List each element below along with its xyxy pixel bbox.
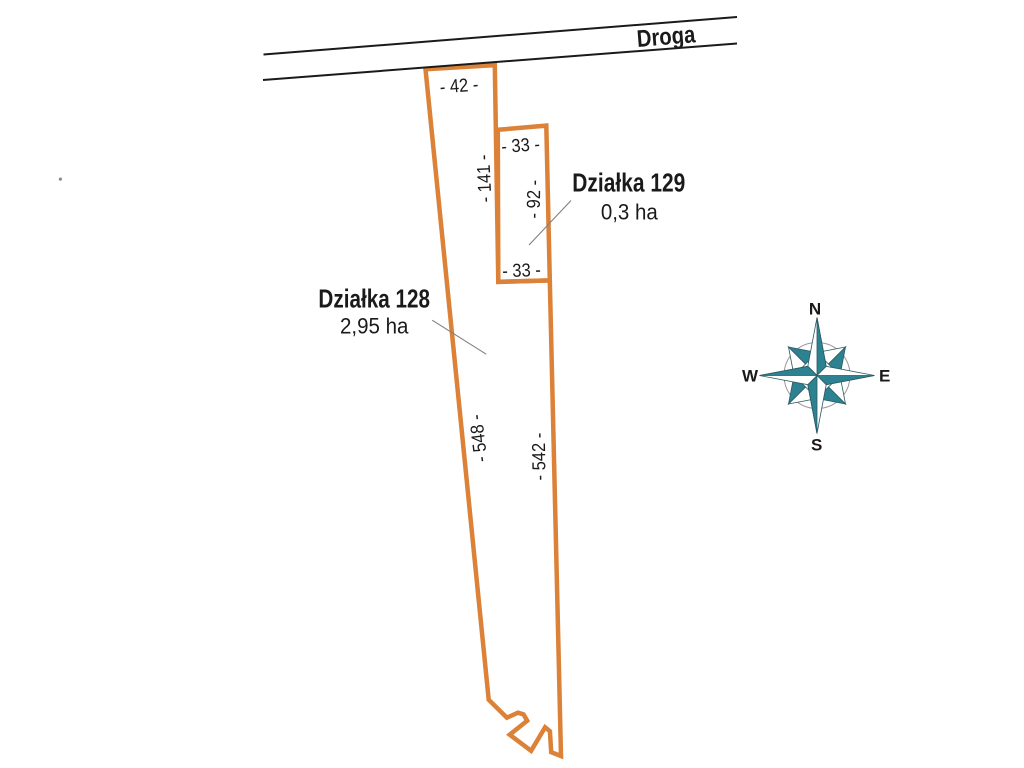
- svg-text:- 542 -: - 542 -: [528, 432, 550, 480]
- svg-text:2,95 ha: 2,95 ha: [340, 314, 408, 339]
- svg-text:Działka 129: Działka 129: [572, 169, 685, 198]
- svg-text:N: N: [809, 300, 821, 319]
- svg-text:- 92 -: - 92 -: [523, 180, 545, 219]
- svg-text:- 33 -: - 33 -: [502, 259, 541, 282]
- svg-text:W: W: [742, 367, 759, 386]
- svg-text:- 33 -: - 33 -: [501, 133, 541, 157]
- svg-text:E: E: [879, 367, 890, 386]
- svg-text:- 42 -: - 42 -: [439, 73, 479, 97]
- svg-text:Działka 128: Działka 128: [318, 285, 430, 314]
- svg-text:S: S: [811, 436, 822, 455]
- svg-text:- 141 -: - 141 -: [472, 154, 495, 203]
- svg-text:0,3 ha: 0,3 ha: [601, 200, 658, 225]
